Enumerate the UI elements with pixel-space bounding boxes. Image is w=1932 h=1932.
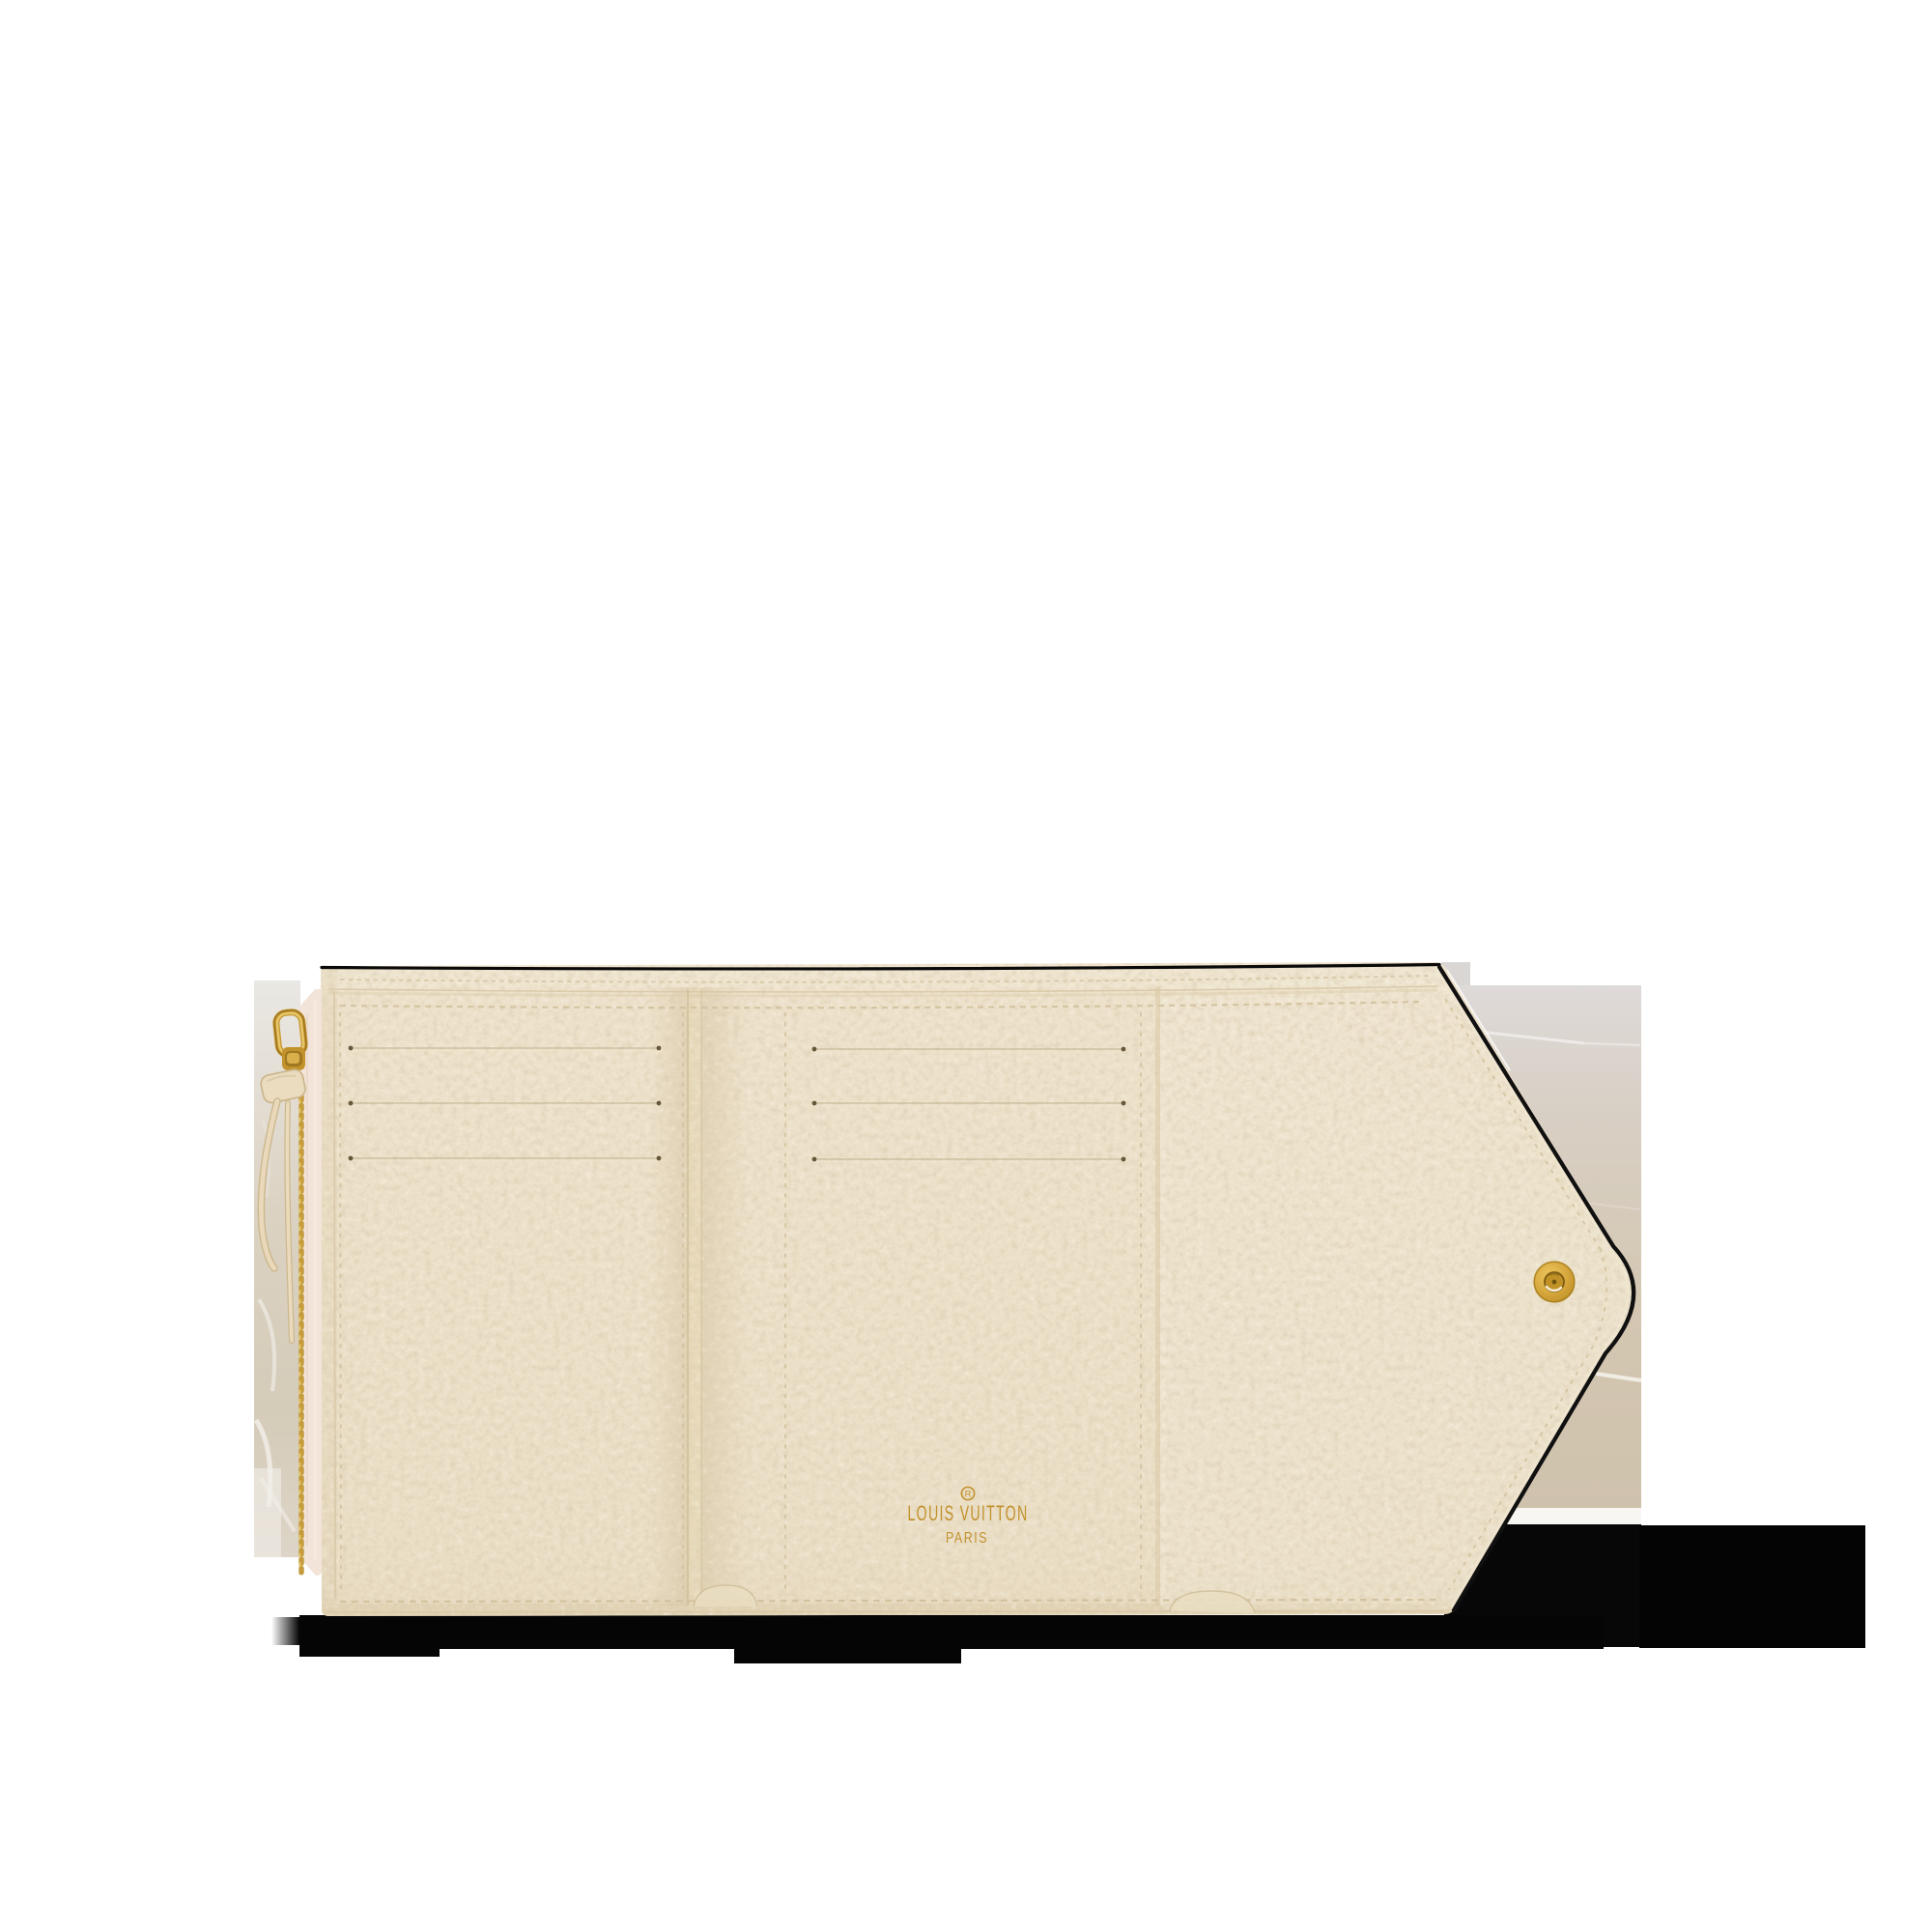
svg-text:R: R [965, 1490, 972, 1500]
svg-text:PARIS: PARIS [946, 1530, 988, 1547]
svg-text:LOUIS VUITTON: LOUIS VUITTON [908, 1501, 1029, 1525]
